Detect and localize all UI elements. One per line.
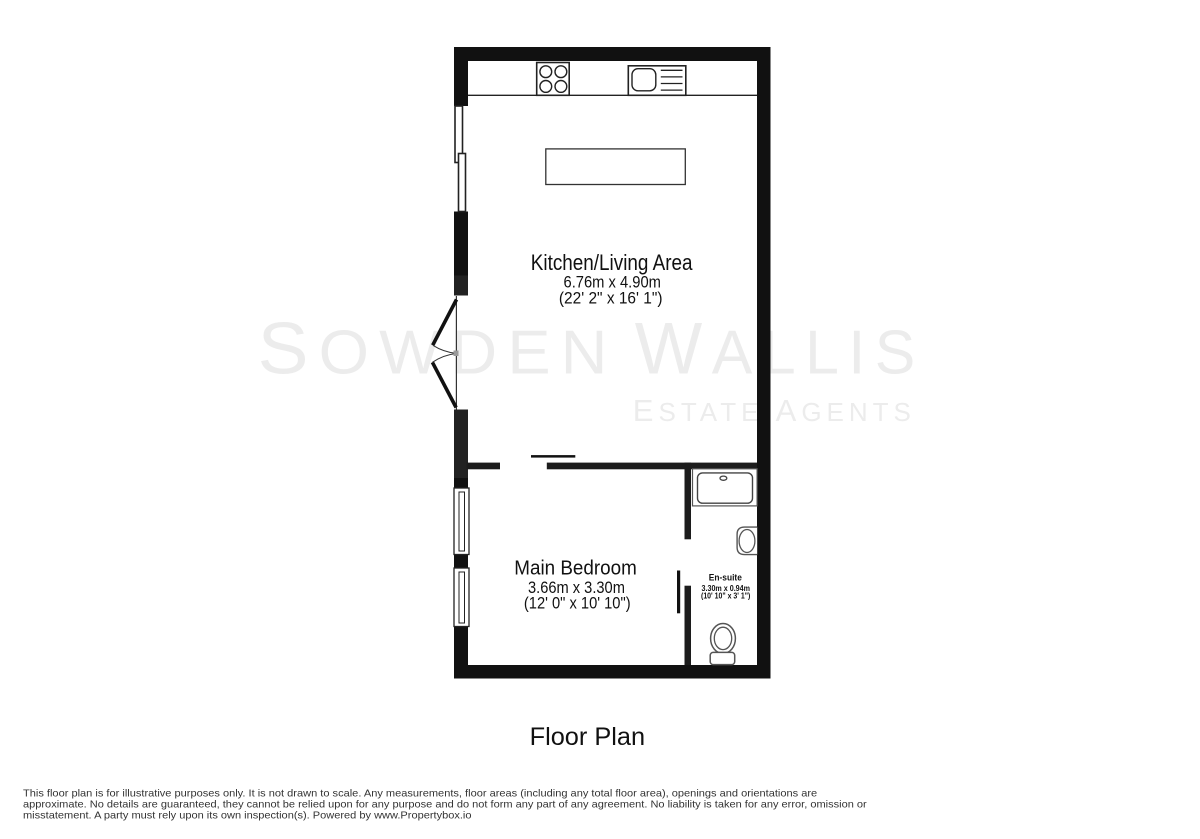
svg-text:(22' 2" x 16' 1"): (22' 2" x 16' 1") xyxy=(559,288,663,307)
svg-text:Kitchen/Living Area: Kitchen/Living Area xyxy=(531,250,693,275)
svg-text:ESTATE AGENTS: ESTATE AGENTS xyxy=(633,393,916,428)
svg-text:misstatement. A party must rel: misstatement. A party must rely upon its… xyxy=(23,810,472,822)
svg-text:En-suite: En-suite xyxy=(709,573,742,583)
svg-text:(12' 0" x 10' 10"): (12' 0" x 10' 10") xyxy=(524,595,631,613)
svg-text:WALLIS: WALLIS xyxy=(635,309,925,390)
svg-text:Main Bedroom: Main Bedroom xyxy=(514,557,637,580)
svg-text:SOWDEN: SOWDEN xyxy=(258,309,618,390)
svg-text:Floor Plan: Floor Plan xyxy=(530,723,646,751)
svg-text:(10' 10" x 3' 1"): (10' 10" x 3' 1") xyxy=(701,591,750,601)
